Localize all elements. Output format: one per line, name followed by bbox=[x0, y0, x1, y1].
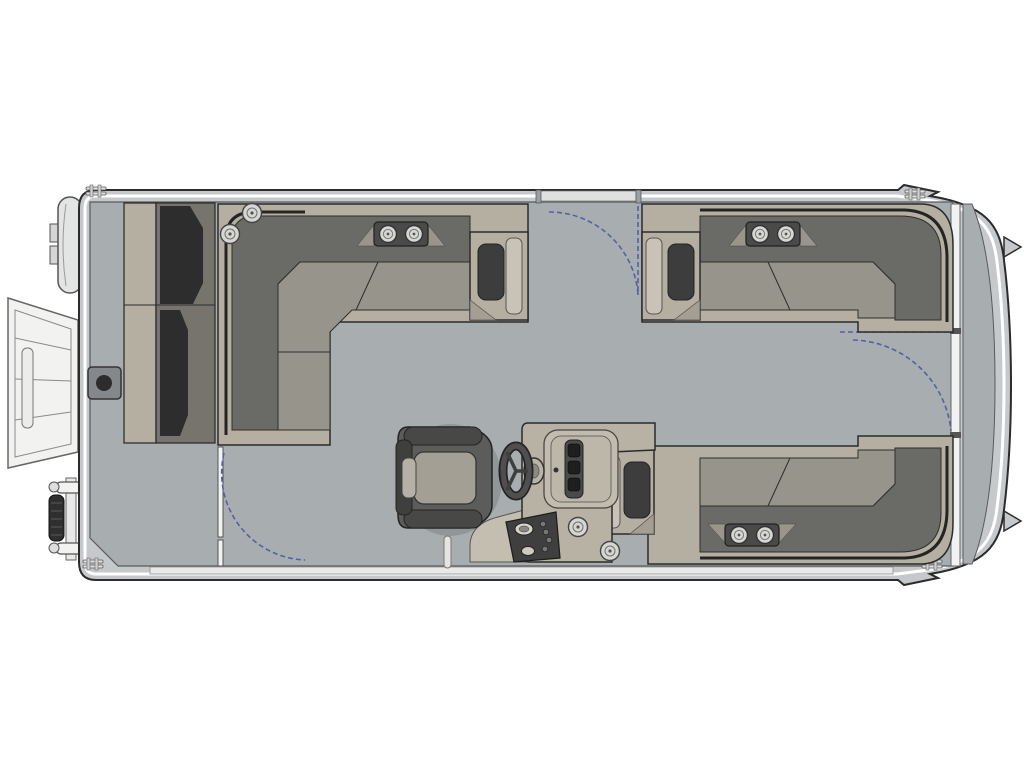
cup-holder bbox=[731, 527, 748, 544]
cup-holder bbox=[243, 204, 262, 223]
pontoon-floor-plan-svg bbox=[0, 0, 1024, 768]
aft-lounge bbox=[602, 436, 953, 564]
ladder-folded-rungs bbox=[49, 495, 64, 541]
cup-holder bbox=[778, 226, 795, 243]
cup-holder bbox=[601, 542, 620, 561]
floor-plan-canvas bbox=[0, 0, 1024, 768]
cup-holder bbox=[757, 527, 774, 544]
bow-pod bbox=[50, 197, 82, 293]
cup-holder bbox=[569, 518, 588, 537]
bow-boarding-ramp bbox=[8, 298, 78, 468]
armrest bbox=[470, 232, 528, 320]
cup-holder bbox=[406, 226, 423, 243]
gate-leaf-open bbox=[218, 447, 223, 537]
armrest bbox=[642, 232, 700, 320]
fence-stub bbox=[218, 540, 223, 566]
starboard-lounge bbox=[642, 204, 953, 332]
cup-holder bbox=[221, 225, 240, 244]
port-cleat-fin bbox=[1004, 511, 1021, 531]
ski-tow-mount bbox=[88, 367, 121, 399]
grab-post bbox=[444, 536, 451, 568]
bow-bench-seat bbox=[124, 203, 215, 443]
chair-cushion bbox=[414, 452, 476, 504]
ignition-switch bbox=[554, 468, 559, 473]
captains-chair bbox=[396, 424, 502, 536]
cup-holder bbox=[752, 226, 769, 243]
starboard-cleat-fin bbox=[1004, 237, 1021, 257]
port-rail-band bbox=[150, 567, 893, 574]
ramp-handle bbox=[22, 348, 33, 428]
cup-holder bbox=[380, 226, 397, 243]
